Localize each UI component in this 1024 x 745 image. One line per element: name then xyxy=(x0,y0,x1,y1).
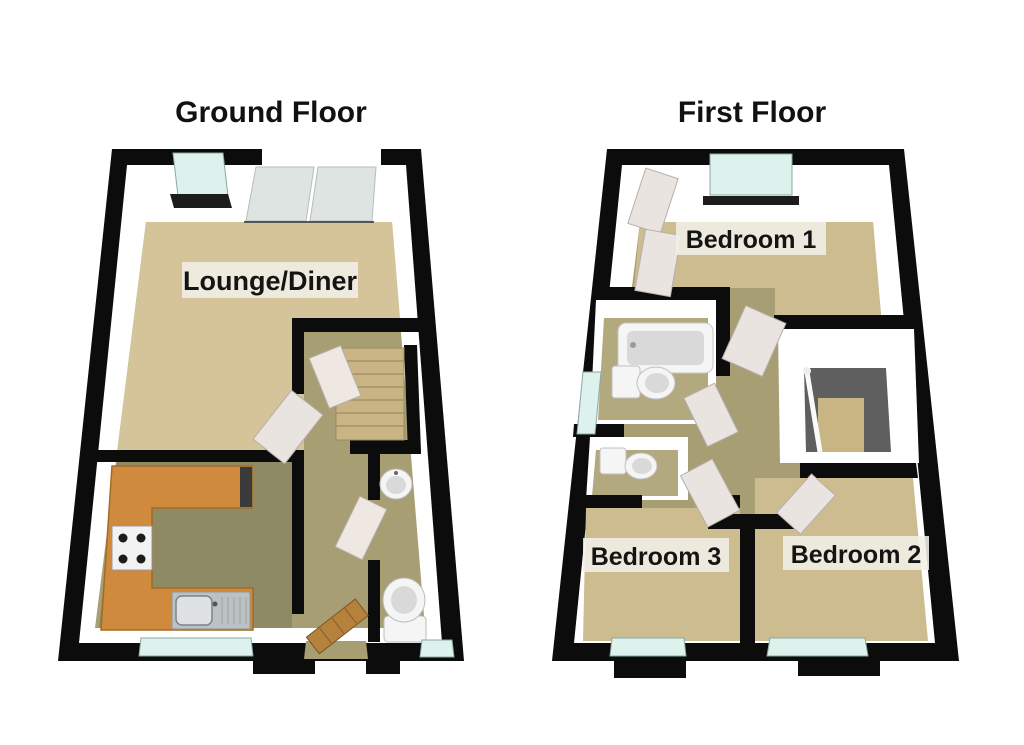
stairwell-steps xyxy=(818,398,864,452)
kitchen-sink xyxy=(172,592,250,629)
bedroom-2-window xyxy=(767,638,868,656)
bedroom-3-label: Bedroom 3 xyxy=(583,538,729,572)
lounge-bay-window-sill xyxy=(170,194,232,208)
svg-text:Bedroom 3: Bedroom 3 xyxy=(591,543,722,571)
bath-tap xyxy=(630,342,636,348)
first-floor-title: First Floor xyxy=(678,96,827,129)
wc-toilet xyxy=(383,578,426,642)
svg-text:Bedroom 1: Bedroom 1 xyxy=(686,226,817,254)
kitchen-appliance xyxy=(240,467,252,507)
ground-floor-title: Ground Floor xyxy=(175,96,367,129)
bedroom-1-window xyxy=(710,154,792,195)
bedroom-3-window xyxy=(610,638,686,656)
svg-text:Bedroom 2: Bedroom 2 xyxy=(791,541,922,569)
ground-floor-plan: Ground Floor xyxy=(58,96,464,674)
sink-tap xyxy=(213,602,218,607)
svg-text:Lounge/Diner: Lounge/Diner xyxy=(183,266,357,296)
bedroom-1-label: Bedroom 1 xyxy=(676,222,826,255)
first-floor-plan: First Floor xyxy=(552,96,959,678)
hob xyxy=(112,526,152,570)
wc-basin xyxy=(380,469,412,499)
floorplan-image: Ground Floor xyxy=(0,0,1024,745)
wc-window xyxy=(420,640,454,657)
kitchen-window xyxy=(139,638,253,656)
bedroom-2-label: Bedroom 2 xyxy=(783,536,929,570)
stairwell xyxy=(778,329,919,463)
bathroom-toilet xyxy=(612,366,675,399)
floorplan-canvas: Ground Floor xyxy=(0,0,1024,745)
bedroom-1-window-sill xyxy=(703,196,799,205)
lounge-bay-window xyxy=(173,153,228,196)
lounge-diner-label: Lounge/Diner xyxy=(182,262,358,298)
